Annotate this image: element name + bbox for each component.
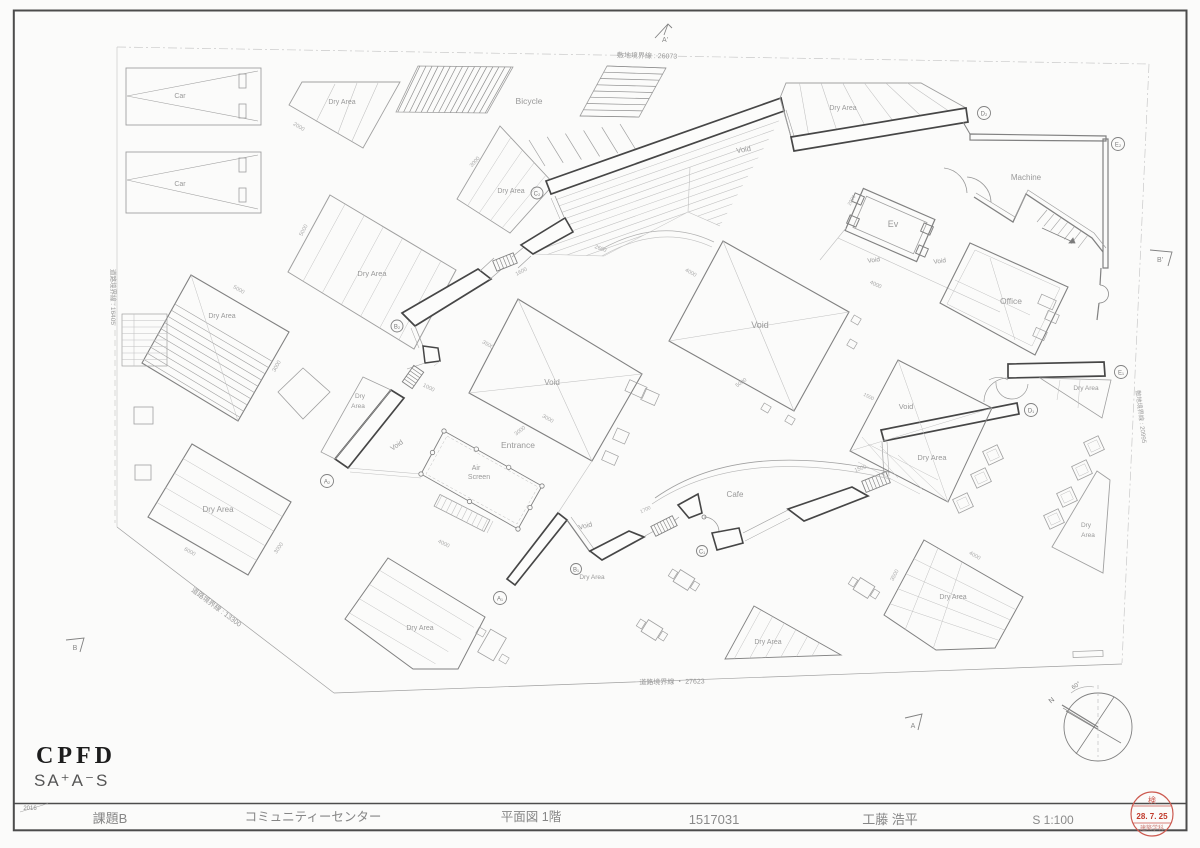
svg-text:C₁: C₁ xyxy=(699,549,705,555)
svg-text:Cafe: Cafe xyxy=(727,490,744,499)
svg-text:A₂: A₂ xyxy=(324,479,331,485)
svg-text:B': B' xyxy=(1157,257,1163,264)
svg-text:Area: Area xyxy=(351,403,365,410)
svg-text:Dry: Dry xyxy=(355,393,366,400)
svg-text:C₂: C₂ xyxy=(534,191,541,197)
svg-text:Dry Area: Dry Area xyxy=(579,574,605,581)
svg-text:CPFD: CPFD xyxy=(36,743,116,769)
svg-text:工藤 浩平: 工藤 浩平 xyxy=(862,812,918,827)
svg-text:課題B: 課題B xyxy=(93,811,128,826)
svg-text:1517031: 1517031 xyxy=(689,812,740,827)
svg-text:Car: Car xyxy=(174,181,186,188)
svg-text:Dry Area: Dry Area xyxy=(1073,385,1099,392)
svg-text:B₁: B₁ xyxy=(573,567,579,573)
svg-text:Dry Area: Dry Area xyxy=(497,188,524,195)
svg-text:B₂: B₂ xyxy=(394,324,401,330)
svg-text:Dry Area: Dry Area xyxy=(202,505,234,514)
svg-text:E₁: E₁ xyxy=(1118,370,1124,376)
svg-text:A: A xyxy=(911,723,916,730)
svg-text:Dry Area: Dry Area xyxy=(939,594,966,601)
svg-text:Void: Void xyxy=(751,320,769,330)
svg-text:Dry Area: Dry Area xyxy=(357,269,387,278)
svg-text:Machine: Machine xyxy=(1011,173,1042,182)
svg-text:D₂: D₂ xyxy=(981,111,988,117)
svg-text:Car: Car xyxy=(174,93,186,100)
svg-text:Dry Area: Dry Area xyxy=(406,625,433,632)
svg-text:S 1:100: S 1:100 xyxy=(1032,813,1074,827)
svg-text:Ev: Ev xyxy=(888,219,899,229)
svg-text:E₂: E₂ xyxy=(1115,142,1122,148)
svg-text:Dry Area: Dry Area xyxy=(208,313,235,320)
svg-text:SA⁺A⁻S: SA⁺A⁻S xyxy=(34,771,109,790)
svg-text:B: B xyxy=(73,645,78,652)
svg-text:建築学科: 建築学科 xyxy=(1140,824,1164,832)
svg-text:平面図 1階: 平面図 1階 xyxy=(501,809,562,824)
svg-text:検: 検 xyxy=(1148,795,1156,805)
svg-text:Area: Area xyxy=(1081,532,1095,539)
svg-text:Dry Area: Dry Area xyxy=(754,639,781,646)
svg-text:Dry: Dry xyxy=(1081,522,1092,529)
svg-text:A': A' xyxy=(662,37,668,44)
svg-text:Screen: Screen xyxy=(468,474,490,481)
svg-text:A₁: A₁ xyxy=(497,596,503,602)
svg-text:Dry Area: Dry Area xyxy=(328,99,355,106)
svg-text:Void: Void xyxy=(899,402,914,411)
svg-text:D₁: D₁ xyxy=(1028,408,1034,414)
svg-text:Dry Area: Dry Area xyxy=(829,105,856,112)
svg-text:コミュニティーセンター: コミュニティーセンター xyxy=(245,810,382,824)
svg-text:Void: Void xyxy=(544,378,560,387)
svg-text:Dry Area: Dry Area xyxy=(917,453,947,462)
svg-text:道路境界線 : 16405: 道路境界線 : 16405 xyxy=(109,269,118,325)
svg-text:Bicycle: Bicycle xyxy=(516,96,543,106)
svg-text:Entrance: Entrance xyxy=(501,440,535,450)
svg-text:Office: Office xyxy=(1000,296,1022,306)
svg-text:28. 7. 25: 28. 7. 25 xyxy=(1136,812,1168,821)
svg-text:Air: Air xyxy=(472,465,481,472)
